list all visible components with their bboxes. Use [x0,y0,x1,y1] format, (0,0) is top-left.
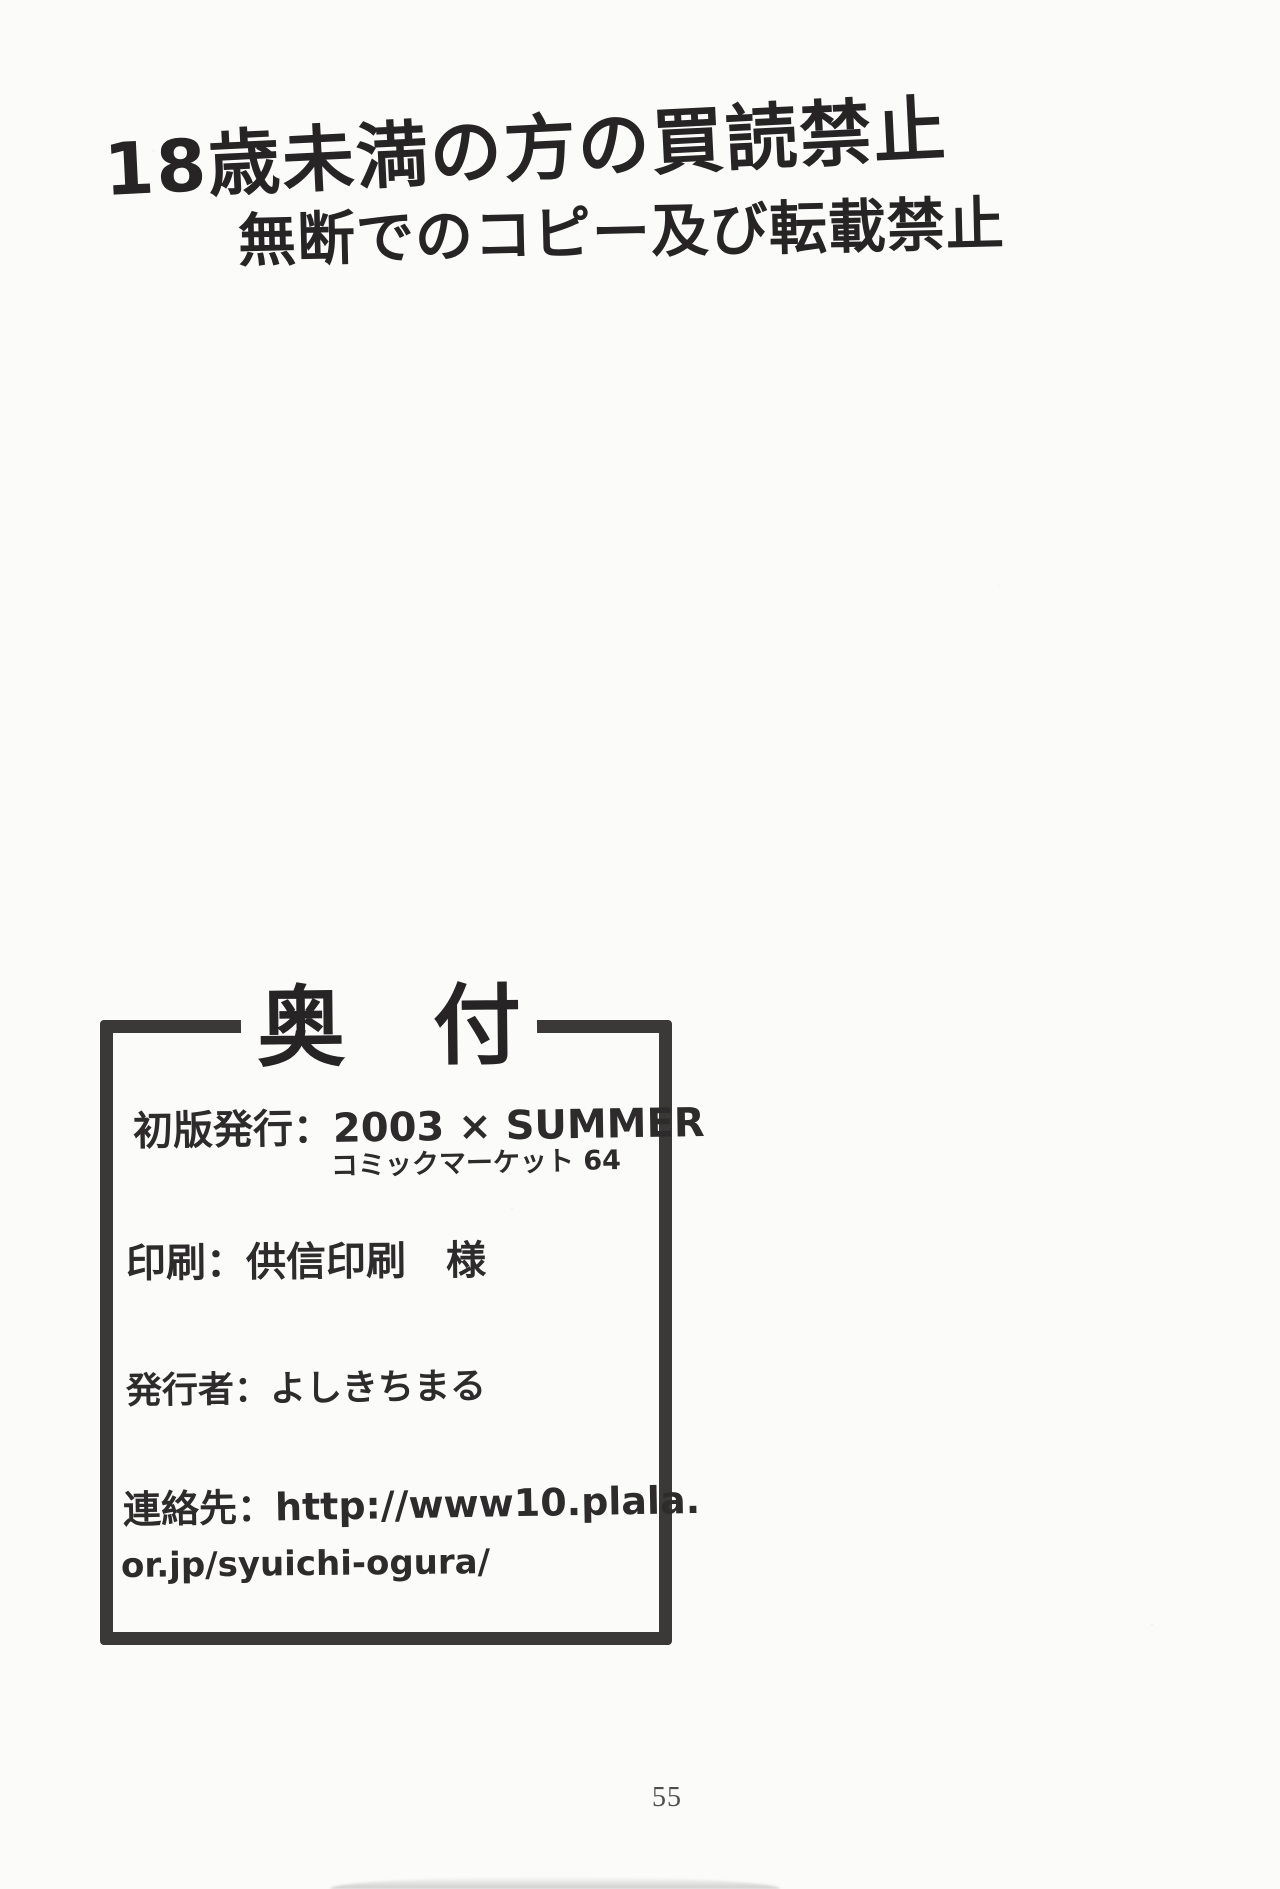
colophon-row-contact-url-line2: or.jp/syuichi-ogura/ [121,1543,490,1586]
colophon-row-contact-url-line1: 連絡先：http://www10.plala. [123,1479,701,1533]
page-number: 55 [652,1782,682,1814]
colophon-row-publisher: 発行者：よしきちまる [126,1366,487,1412]
age-warning-line-1: 18歳未満の方の買読禁止 [102,93,949,206]
colophon-row-printer: 印刷：供信印刷 様 [126,1238,486,1287]
scan-edge-smudge [330,1877,780,1889]
colophon-row-first-edition-event: コミックマーケット 64 [331,1145,622,1182]
colophon-title: 奥 付 [241,977,538,1077]
colophon-box: 奥 付 初版発行：2003 × SUMMER コミックマーケット 64 印刷：供… [100,1020,672,1645]
scanned-page: 18歳未満の方の買読禁止 無断でのコピー及び転載禁止 奥 付 初版発行：2003… [0,0,1280,1889]
copy-prohibition-line-2: 無断でのコピー及び転載禁止 [237,195,1005,270]
